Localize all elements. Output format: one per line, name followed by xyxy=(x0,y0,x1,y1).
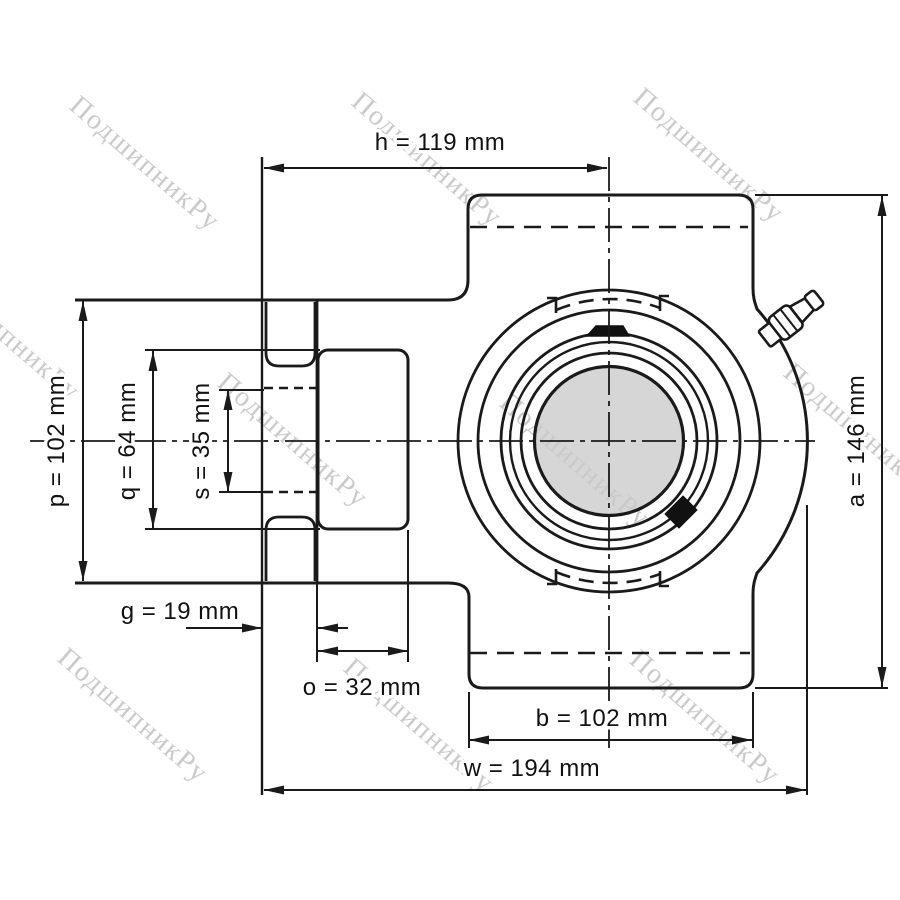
arrowhead xyxy=(242,624,262,633)
arrowhead xyxy=(264,786,284,795)
bearing-unit-drawing: ПодшипникРу ПодшипникРу ПодшипникРу Подш… xyxy=(0,0,900,900)
dimension-label-s: s = 35 mm xyxy=(188,382,215,499)
watermark-text: ПодшипникРу xyxy=(63,90,226,237)
arrowhead xyxy=(79,301,88,321)
arrowhead xyxy=(149,351,158,371)
arrowhead xyxy=(264,164,284,173)
watermark-text: ПодшипникРу xyxy=(51,642,214,789)
dimension-label-h: h = 119 mm xyxy=(375,129,506,156)
dimension-label-q: q = 64 mm xyxy=(114,382,141,501)
grease-fitting xyxy=(756,286,828,351)
arrowhead xyxy=(388,647,408,656)
set-screw xyxy=(587,326,629,336)
arrowhead xyxy=(318,624,338,633)
arrowhead xyxy=(587,164,607,173)
arrowhead xyxy=(878,667,887,687)
dimension-label-o: o = 32 mm xyxy=(303,674,422,701)
watermark-text: ПодшипникРу xyxy=(627,82,790,229)
dimension-label-b: b = 102 mm xyxy=(536,705,668,732)
watermark-text: ПодшипникРу xyxy=(345,86,508,233)
dimension-label-a: a = 146 mm xyxy=(843,375,870,507)
frame-fillet-bottom xyxy=(266,517,315,581)
arrowhead xyxy=(318,647,338,656)
collar-hidden-arc-bottom xyxy=(556,572,660,583)
dimension-label-g: g = 19 mm xyxy=(121,598,240,625)
arrowhead xyxy=(786,786,806,795)
collar-slot-wedge xyxy=(665,496,697,528)
dimension-label-p: p = 102 mm xyxy=(43,375,70,507)
extension-lines-g-o xyxy=(317,530,408,662)
dimension-label-w: w = 194 mm xyxy=(463,755,600,782)
technical-drawing-page: ПодшипникРу ПодшипникРу ПодшипникРу Подш… xyxy=(0,0,900,900)
arrowhead xyxy=(878,196,887,216)
arrowhead xyxy=(224,472,233,492)
arrowhead xyxy=(79,561,88,581)
arrowhead xyxy=(469,736,489,745)
arrowhead xyxy=(149,508,158,528)
line-art xyxy=(30,157,827,748)
collar-hidden-arc-top xyxy=(556,299,660,310)
frame-fillet-top xyxy=(266,302,315,366)
